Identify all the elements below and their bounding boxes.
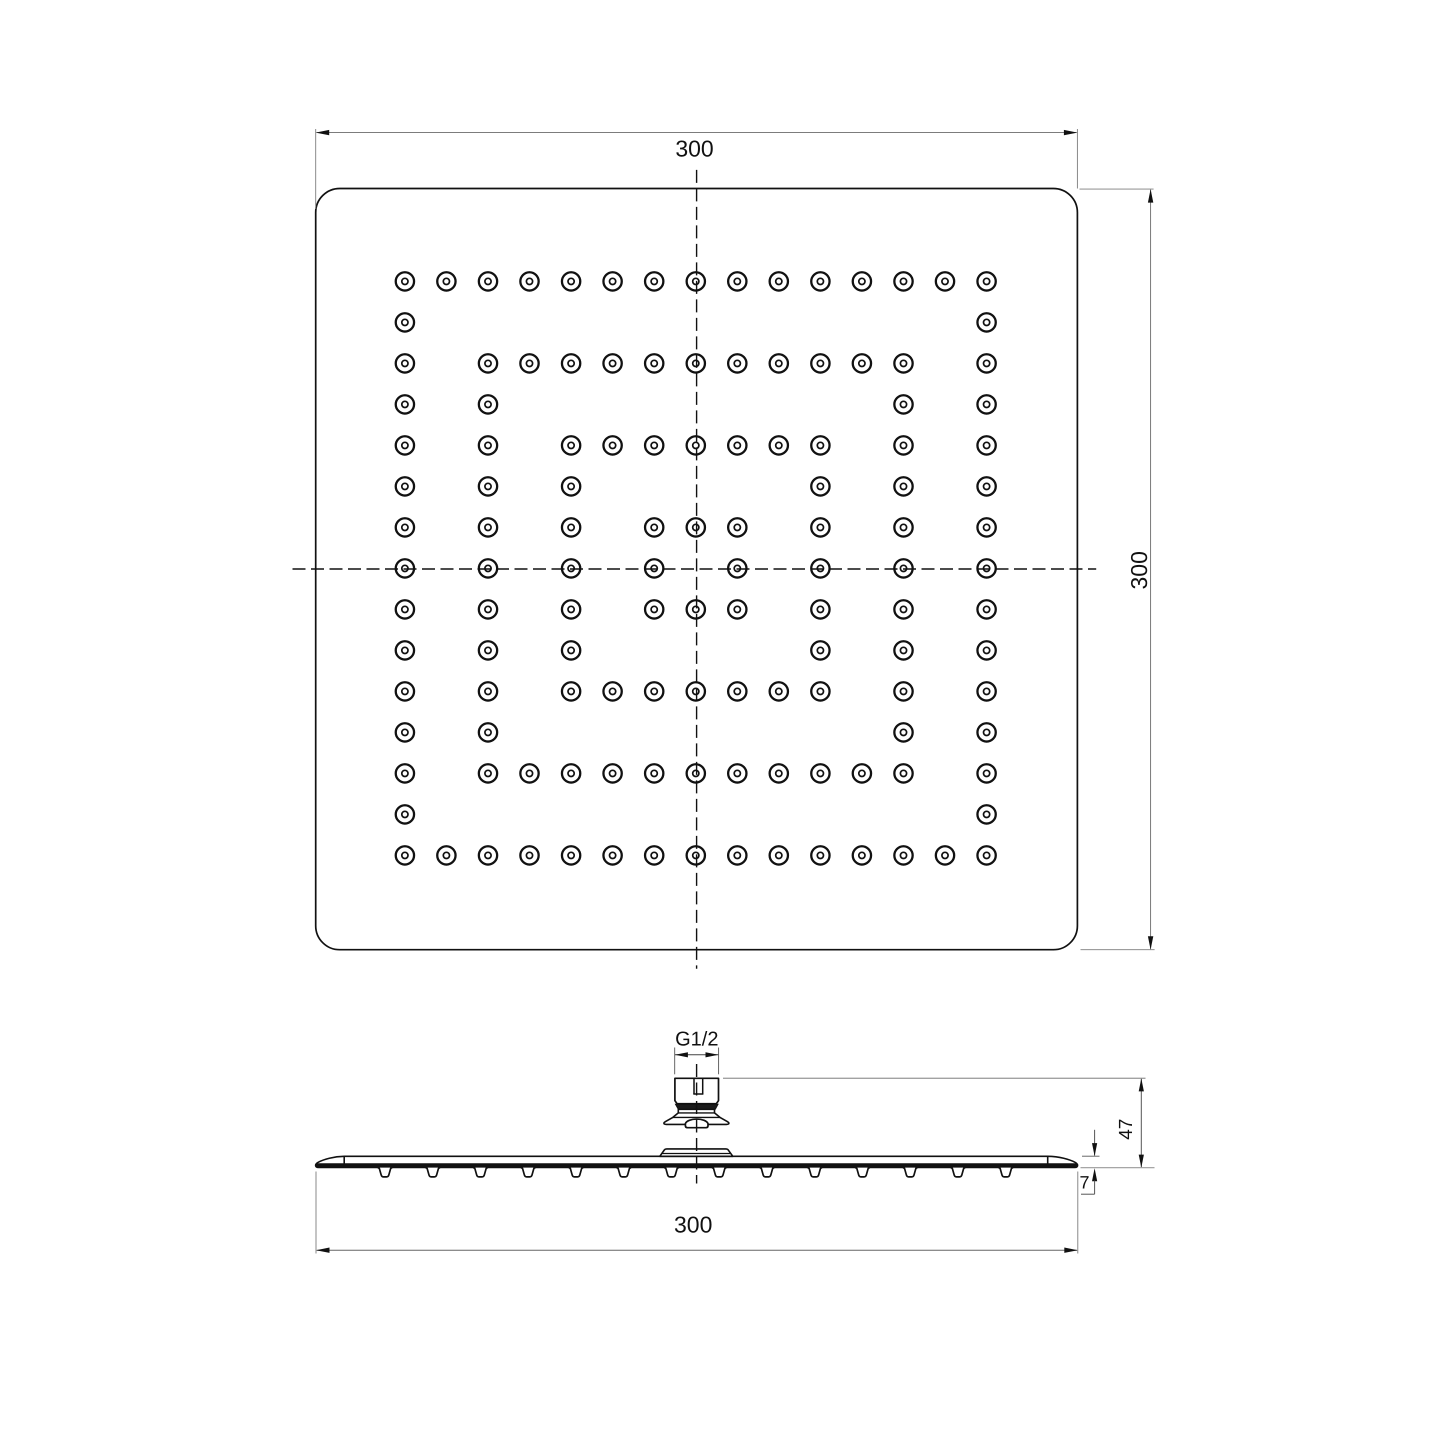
svg-text:300: 300 [675, 136, 713, 162]
svg-text:G1/2: G1/2 [675, 1029, 718, 1051]
svg-text:300: 300 [1126, 551, 1152, 589]
svg-text:47: 47 [1116, 1119, 1137, 1140]
svg-text:300: 300 [674, 1212, 712, 1238]
svg-text:7: 7 [1079, 1173, 1089, 1193]
